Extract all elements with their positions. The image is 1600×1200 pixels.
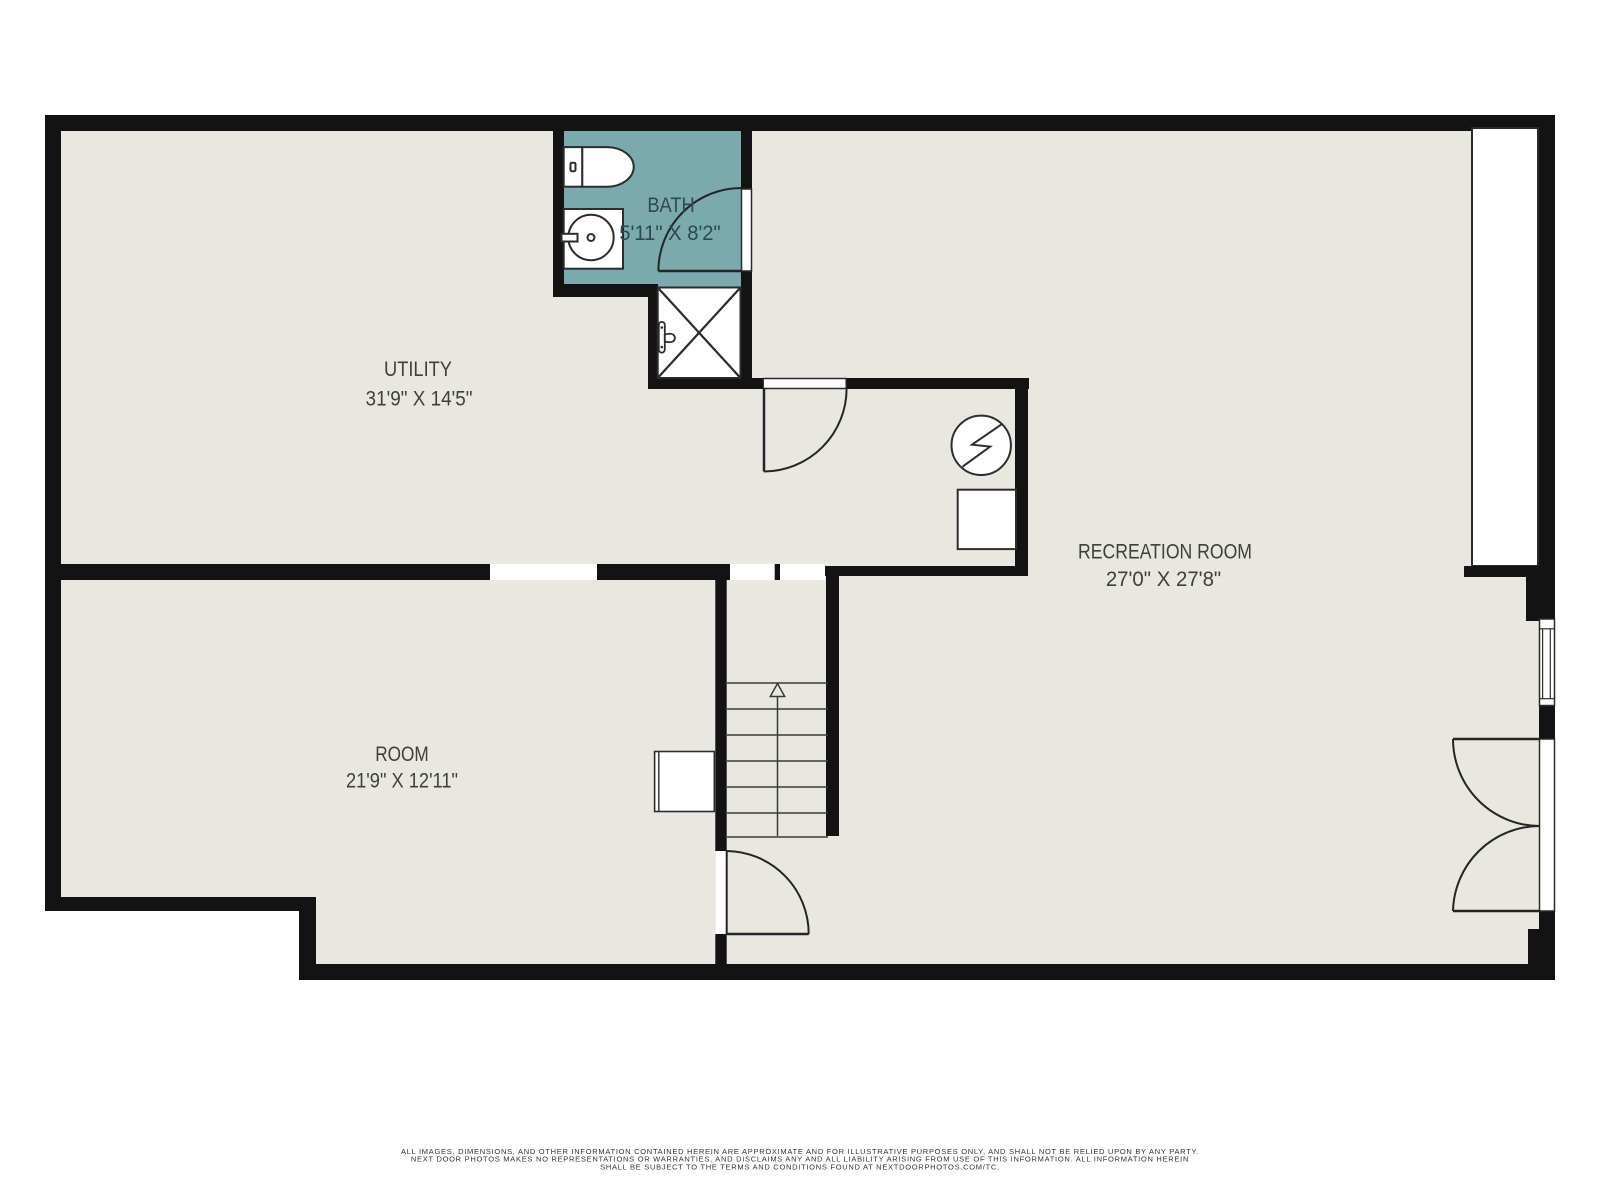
svg-text:27'0" X 27'8": 27'0" X 27'8" [1106,568,1221,592]
svg-text:21'9" X 12'11": 21'9" X 12'11" [346,769,458,793]
svg-text:31'9" X 14'5": 31'9" X 14'5" [366,387,473,410]
svg-text:SHALL BE SUBJECT TO THE TERMS: SHALL BE SUBJECT TO THE TERMS AND CONDIT… [600,1163,1000,1172]
svg-text:5'11" X 8'2": 5'11" X 8'2" [619,221,720,245]
svg-text:RECREATION ROOM: RECREATION ROOM [1078,540,1252,564]
svg-text:BATH: BATH [647,194,694,218]
svg-text:ROOM: ROOM [375,742,428,766]
svg-text:UTILITY: UTILITY [384,358,452,382]
